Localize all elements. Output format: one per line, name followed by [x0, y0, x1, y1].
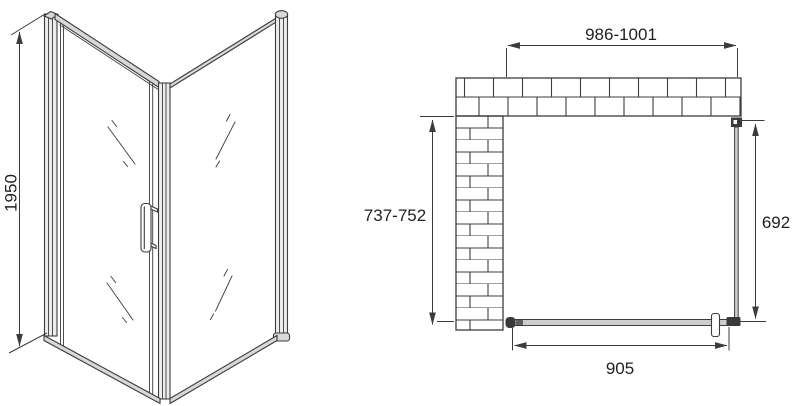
depth-dimension: 737-752 — [364, 117, 454, 325]
brick-wall-top — [456, 78, 741, 116]
side-panel-dimension: 692 — [740, 121, 790, 322]
door-panel-plan — [508, 320, 737, 326]
width-dimension: 986-1001 — [507, 25, 738, 77]
brick-wall-left — [456, 116, 503, 330]
side-panel-bottom-rail — [170, 336, 277, 404]
back-right-frame-post — [274, 11, 290, 341]
width-dimension-label: 986-1001 — [585, 25, 657, 44]
height-dimension-label: 1950 — [1, 174, 20, 212]
glass-shine-marks — [107, 115, 235, 323]
wall-bracket — [731, 118, 742, 128]
extension-lines — [513, 327, 730, 351]
back-left-frame-post — [44, 12, 58, 337]
side-panel-top-rail — [170, 18, 277, 89]
door-left-stile — [61, 23, 64, 346]
door-width-dimension: 905 — [513, 327, 730, 378]
height-dimension: 1950 — [1, 14, 47, 353]
plan-view: 986-1001 737-752 692 905 — [364, 25, 790, 378]
front-view: 1950 — [1, 11, 289, 404]
glass-side-panel — [735, 127, 739, 320]
side-panel-dimension-label: 692 — [762, 213, 790, 232]
technical-drawing: 1950 986-1001 737-752 — [0, 0, 800, 406]
drawing-canvas: 1950 986-1001 737-752 — [0, 0, 800, 406]
corner-post — [159, 83, 171, 399]
door-handle-icon — [141, 204, 158, 253]
post-cap — [275, 11, 287, 19]
door-top-rail — [55, 14, 159, 91]
door-handle-plan-icon — [712, 314, 720, 337]
depth-dimension-label: 737-752 — [364, 206, 426, 225]
hinge-fitting — [506, 317, 524, 328]
door-bottom-rail — [44, 336, 160, 404]
extension-lines — [507, 48, 738, 77]
corner-fitting — [727, 317, 741, 326]
door-width-dimension-label: 905 — [606, 359, 634, 378]
